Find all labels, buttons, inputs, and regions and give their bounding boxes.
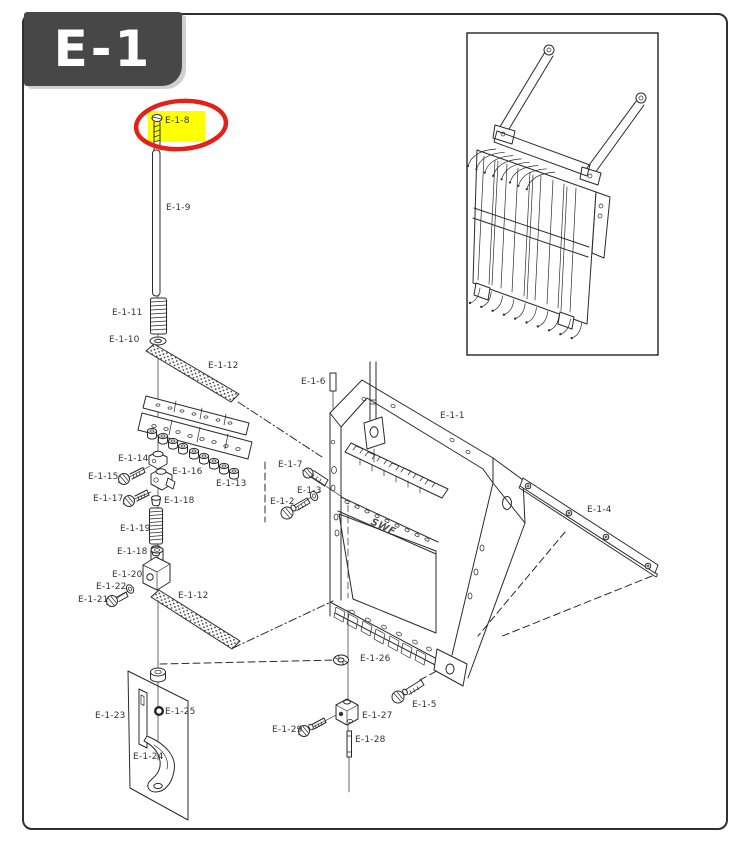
- part-label-e-1-16: E-1-16: [172, 467, 203, 477]
- part-label-e-1-27: E-1-27: [362, 711, 393, 721]
- part-label-e-1-23: E-1-23: [95, 711, 126, 721]
- inset-assembled-view: [467, 33, 658, 355]
- part-e-1-7-screw: [303, 468, 328, 486]
- part-e-1-21-screw: [107, 592, 129, 607]
- part-label-e-1-5: E-1-5: [412, 700, 437, 710]
- part-e-1-18-cap-upper: [152, 496, 161, 506]
- part-label-e-1-1: E-1-1: [440, 411, 465, 421]
- part-label-e-1-11: E-1-11: [112, 308, 143, 318]
- part-label-e-1-22: E-1-22: [96, 582, 127, 592]
- part-label-e-1-20: E-1-20: [112, 570, 143, 580]
- part-e-1-6-pin: [330, 373, 336, 409]
- part-label-e-1-10: E-1-10: [109, 335, 140, 345]
- part-label-e-1-26: E-1-26: [360, 654, 391, 664]
- part-e-1-24-bracket: [139, 689, 174, 792]
- part-e-1-10-washer: [150, 337, 166, 345]
- part-e-1-28-pin: [347, 731, 352, 757]
- part-label-e-1-18-b: E-1-18: [117, 547, 148, 557]
- part-e-1-19-spring: [150, 508, 164, 544]
- part-e-1-25-ring: [155, 707, 163, 715]
- part-label-e-1-15: E-1-15: [88, 472, 119, 482]
- part-label-e-1-4: E-1-4: [587, 505, 612, 515]
- part-label-e-1-9: E-1-9: [166, 203, 191, 213]
- part-label-e-1-28: E-1-28: [355, 735, 386, 745]
- part-e-1-1-frame: SWF: [330, 380, 525, 686]
- part-label-e-1-25: E-1-25: [165, 707, 196, 717]
- part-label-e-1-18-a: E-1-18: [164, 496, 195, 506]
- part-label-e-1-13: E-1-13: [216, 479, 247, 489]
- part-e-1-12-strip-upper: [146, 344, 239, 402]
- part-label-e-1-24: E-1-24: [133, 752, 164, 762]
- part-label-e-1-6: E-1-6: [301, 377, 326, 387]
- part-label-e-1-12-b: E-1-12: [178, 591, 209, 601]
- part-label-e-1-2: E-1-2: [270, 497, 295, 507]
- part-label-e-1-7: E-1-7: [278, 460, 303, 470]
- part-label-e-1-12-a: E-1-12: [208, 361, 239, 371]
- part-label-e-1-14: E-1-14: [118, 454, 149, 464]
- part-e-1-26-washer: [334, 655, 349, 665]
- part-label-e-1-17: E-1-17: [93, 494, 124, 504]
- part-label-e-1-8: E-1-8: [165, 116, 190, 126]
- part-label-e-1-29: E-1-29: [272, 725, 303, 735]
- panel-top-nut: [151, 668, 166, 682]
- part-e-1-14-block: [149, 451, 167, 469]
- part-label-e-1-21: E-1-21: [78, 595, 109, 605]
- part-e-1-11-spring: [151, 298, 168, 334]
- frame-logo: SWF: [369, 517, 398, 538]
- part-e-1-9-rod: [153, 150, 161, 296]
- part-label-e-1-19: E-1-19: [120, 524, 151, 534]
- exploded-parts-diagram-page: E-1: [0, 0, 735, 848]
- part-e-1-27-clamp: [336, 699, 358, 725]
- frame-inner-rod: [364, 362, 385, 462]
- part-label-e-1-3: E-1-3: [297, 486, 322, 496]
